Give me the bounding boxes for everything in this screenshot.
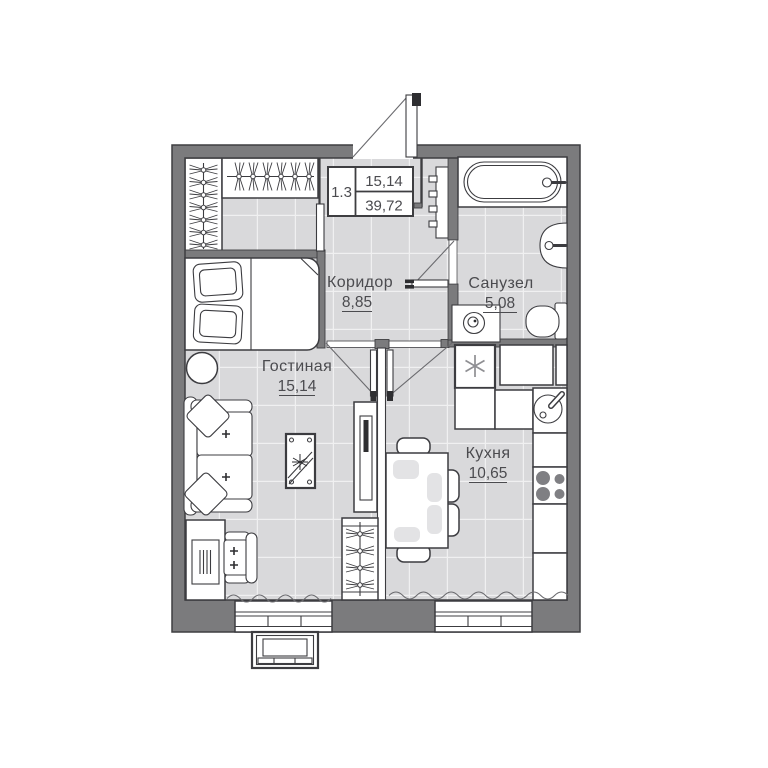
round-side-table: [187, 353, 218, 384]
corridor-area: 8,85: [342, 294, 372, 311]
living-room-name: Гостиная: [262, 358, 332, 375]
desk: [186, 520, 225, 600]
floorplan-drawing: Санузел 5,08: [0, 0, 768, 768]
kitchen-counter: [533, 433, 567, 467]
sofa: [183, 393, 252, 516]
air-conditioner: [252, 632, 318, 668]
patterned-rug: [286, 434, 315, 488]
wall-foot: [414, 203, 422, 208]
corridor-name: Коридор: [327, 274, 393, 291]
bed: [185, 258, 319, 350]
bathroom-door-jamb: [449, 240, 457, 284]
stamp-total-area: 39,72: [365, 198, 403, 215]
bed-pillow: [193, 261, 244, 302]
floorplan: Санузел 5,08: [0, 0, 768, 768]
bathroom-name: Санузел: [468, 275, 533, 292]
hanger-wardrobe: [342, 518, 378, 600]
kitchen-cabinet: [556, 345, 567, 385]
area-stamp: 1.3 15,14 39,72: [328, 167, 413, 216]
tv-stand: [354, 402, 377, 512]
kitchen-cabinet: [455, 388, 495, 429]
dining-table: [386, 453, 448, 548]
living-room-area: 15,14: [278, 378, 317, 395]
kitchen-sink: [533, 388, 567, 433]
kitchen-area: 10,65: [469, 465, 508, 482]
stove: [533, 467, 567, 504]
stamp-room-area: 15,14: [365, 173, 403, 190]
coat-wardrobe: [185, 158, 222, 253]
bathroom-area: 5,08: [485, 295, 515, 312]
kitchen-name: Кухня: [466, 445, 511, 462]
desk-chair: [224, 532, 257, 583]
bed-pillow: [193, 304, 243, 344]
toilet: [526, 303, 567, 339]
entrance-door: [353, 93, 421, 159]
window-living-room: [235, 601, 332, 632]
kitchen-counter: [533, 504, 567, 553]
stamp-unit: 1.3: [331, 184, 352, 201]
kitchen-cabinet: [500, 345, 553, 385]
hanger-closet: [222, 158, 318, 198]
window-kitchen: [435, 601, 532, 632]
closet-door-jamb: [317, 204, 325, 251]
fridge: [455, 345, 495, 388]
kitchen-cabinet: [495, 390, 533, 429]
bathtub: [458, 157, 567, 207]
